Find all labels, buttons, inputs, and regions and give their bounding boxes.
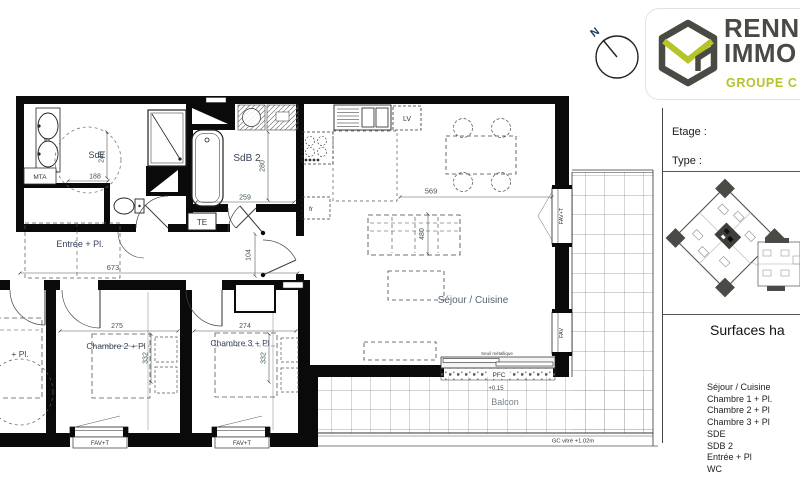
dim-entree-w: 673: [107, 263, 120, 272]
logo-line2: IMMO: [724, 41, 800, 66]
room-list-item: Entrée + Pl: [707, 452, 772, 464]
room-list-item: SDB 2: [707, 441, 772, 453]
fr-label: fr: [309, 206, 314, 213]
room-list-item: Chambre 1 + Pl.: [707, 394, 772, 406]
etage-label: Etage :: [672, 126, 707, 138]
floor-plan: MTA MV LV fr: [0, 0, 665, 500]
dim-entree-h: 104: [246, 249, 253, 261]
dim-ch2-w: 275: [111, 323, 123, 330]
bathtub-icon: [192, 130, 223, 206]
room-label-sejour: Séjour / Cuisine: [438, 295, 509, 306]
north-label: N: [588, 25, 602, 39]
balcony-tiles: [310, 170, 658, 446]
favt-label: FAV+T: [559, 207, 565, 224]
type-label: Type :: [672, 155, 702, 167]
room-list-item: WC: [707, 464, 772, 476]
te-label: TE: [197, 218, 207, 227]
sidebar-rule: [662, 171, 800, 172]
keyplan-building-2: [758, 238, 800, 291]
logo-subtitle: GROUPE C: [726, 76, 797, 90]
room-label-ch1: + Pl.: [11, 349, 28, 359]
seuil-label: Seuil métallique: [481, 351, 513, 356]
window-ch3: FAV+T: [212, 416, 270, 448]
closet-box: [235, 284, 275, 312]
room-list-item: SDE: [707, 429, 772, 441]
room-label-ch2: Chambre 2 + Pl: [86, 341, 145, 351]
dim-ch3-h: 332: [261, 352, 268, 364]
sde-room: [36, 108, 186, 214]
logo-hexagon-icon: [656, 18, 720, 88]
dining-table-icon: [446, 119, 516, 192]
room-list-item: Chambre 3 + Pl: [707, 417, 772, 429]
chambre2: [92, 292, 177, 430]
dim-sde-w: 188: [89, 174, 101, 181]
gc-label: GC vitré +1.02m: [552, 439, 595, 445]
room-list-item: Chambre 2 + Pl: [707, 405, 772, 417]
chambre1: [0, 318, 53, 425]
room-list-item: Séjour / Cuisine: [707, 382, 772, 394]
room-label-entree: Entrée + Pl.: [56, 239, 103, 249]
dim-sdb2-w: 259: [239, 195, 251, 202]
sliding-door-pfc: PFC: [441, 357, 555, 380]
fav-label: FAV: [559, 328, 565, 338]
chambre3: [215, 284, 298, 430]
window-right-bottom: FAV: [552, 309, 572, 356]
compass-icon: N: [588, 25, 638, 78]
balcon-level: +0.15: [488, 386, 504, 392]
logo-wordmark: RENN IMMO: [724, 16, 800, 66]
dim-sejour-h: 480: [419, 228, 426, 240]
coffee-table-icon: [388, 271, 444, 300]
dim-ch3-w: 274: [239, 323, 251, 330]
key-plan: [663, 176, 800, 316]
lv-label: LV: [403, 116, 411, 123]
sejour-furniture: [364, 119, 516, 361]
hob-icon: [302, 132, 333, 164]
room-list: Séjour / Cuisine Chambre 1 + Pl. Chambre…: [707, 382, 772, 476]
surfaces-title: Surfaces ha: [710, 322, 785, 338]
dim-ch2-h: 332: [143, 352, 150, 364]
te-box: TE: [188, 213, 216, 230]
dim-sejour-w: 569: [425, 187, 438, 196]
sideboard-icon: [368, 215, 460, 255]
room-label-sde: SdE: [88, 150, 105, 160]
toilet-icon: [114, 198, 144, 214]
sink-icon: [38, 113, 58, 139]
fridge-outline: [302, 197, 330, 219]
dimension-labels: 188 240 259 280 673 104 569 480 275 332 …: [89, 151, 437, 364]
room-label-balcon: Balcon: [491, 397, 519, 407]
mta-label: MTA: [33, 174, 47, 181]
room-label-ch3: Chambre 3 + Pl: [210, 338, 269, 348]
sink-icon: [38, 141, 58, 167]
window-right-top: FAV+T: [538, 185, 572, 247]
favt-label: FAV+T: [91, 441, 109, 447]
pfc-label: PFC: [493, 372, 506, 379]
window-ch2: FAV+T: [70, 416, 128, 448]
tv-bench-icon: [364, 342, 436, 360]
room-label-sdb2: SdB 2: [233, 153, 261, 164]
counter-outline: [333, 131, 397, 201]
mv-label: MV: [44, 137, 51, 142]
favt-label: FAV+T: [233, 441, 251, 447]
